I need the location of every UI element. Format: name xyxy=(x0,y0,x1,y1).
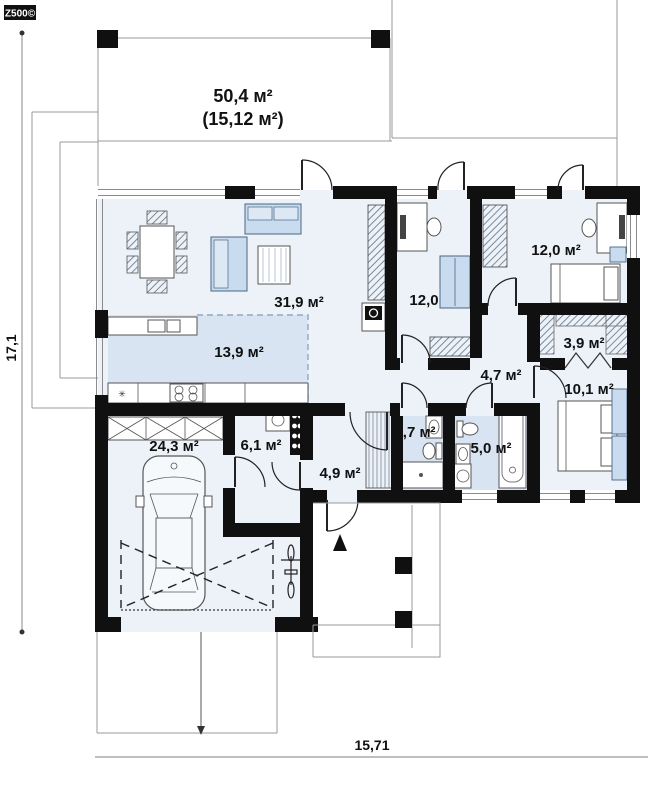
office-label: 12,0 xyxy=(409,292,438,309)
window xyxy=(397,186,428,199)
monitor xyxy=(619,215,625,239)
car-mirror xyxy=(136,496,144,507)
bedroom-top-label: 12,0 м² xyxy=(531,242,580,259)
window xyxy=(515,186,547,199)
nightstand xyxy=(612,436,627,480)
entry-wardrobe xyxy=(366,412,393,488)
dining-chair xyxy=(176,256,187,273)
window xyxy=(98,186,225,199)
dining-chair xyxy=(147,280,167,293)
hall-label: 4,7 м² xyxy=(480,367,521,384)
bedroom-right-furniture xyxy=(558,389,627,480)
sink-basin xyxy=(148,320,165,332)
garage-shelving xyxy=(108,417,223,440)
wc-label: 2,7 м² xyxy=(394,424,435,441)
porch xyxy=(313,503,440,657)
car xyxy=(136,456,212,610)
pillow xyxy=(604,267,618,300)
entry-hall-label: 4,9 м² xyxy=(319,465,360,482)
dining-chair xyxy=(147,211,167,224)
toilet xyxy=(423,443,442,459)
tall-cabinet xyxy=(368,205,385,300)
window xyxy=(462,490,497,503)
logo-text: Z500© xyxy=(5,9,36,20)
driveway xyxy=(97,632,277,735)
dining-table xyxy=(140,226,174,278)
terrace-door xyxy=(302,160,332,190)
wardrobe-cabinet xyxy=(483,205,507,267)
monitor xyxy=(400,215,406,239)
floor-plan-page: ✳ xyxy=(0,0,655,792)
bathroom-label: 5,0 м² xyxy=(470,440,511,457)
wardrobe-label: 3,9 м² xyxy=(563,335,604,352)
cooktop xyxy=(170,384,203,402)
nightstand xyxy=(612,389,627,434)
terrace-area-label: 50,4 м² xyxy=(213,86,272,106)
office-chair xyxy=(427,218,441,236)
window xyxy=(627,215,640,258)
driveway-arrow xyxy=(197,726,205,735)
utility-label: 6,1 м² xyxy=(240,437,281,454)
height-dimension-label: 17,1 xyxy=(3,334,19,361)
width-dimension-label: 15,71 xyxy=(354,737,389,753)
dining-chair xyxy=(127,256,138,273)
bedroom-right-label: 10,1 м² xyxy=(564,381,613,398)
garage-label: 24,3 м² xyxy=(149,438,198,455)
porch-pillar xyxy=(395,557,412,574)
dining-chair xyxy=(176,232,187,249)
kitchen-label: 13,9 м² xyxy=(214,344,263,361)
terrace-door xyxy=(438,162,464,190)
window xyxy=(255,186,300,199)
sink-basin xyxy=(167,320,180,332)
nightstand xyxy=(610,247,626,262)
window xyxy=(540,490,570,503)
desk-chair xyxy=(582,219,596,237)
living-room-label: 31,9 м² xyxy=(274,294,323,311)
logo: Z500© xyxy=(4,5,36,20)
porch-pillar xyxy=(395,611,412,628)
fridge-icon: ✳ xyxy=(118,389,126,399)
entrance-arrow xyxy=(333,534,347,551)
floor-plan-svg: ✳ xyxy=(0,0,655,792)
car-mirror xyxy=(204,496,212,507)
window xyxy=(585,490,615,503)
dimension-bottom: 15,71 xyxy=(95,737,648,757)
office-dresser xyxy=(430,337,477,356)
dimension-left: 17,1 xyxy=(3,31,25,635)
entrance-door xyxy=(327,500,358,531)
oven-unit xyxy=(362,303,385,331)
dining-chair xyxy=(127,232,138,249)
terrace-area-secondary-label: (15,12 м²) xyxy=(202,109,283,129)
